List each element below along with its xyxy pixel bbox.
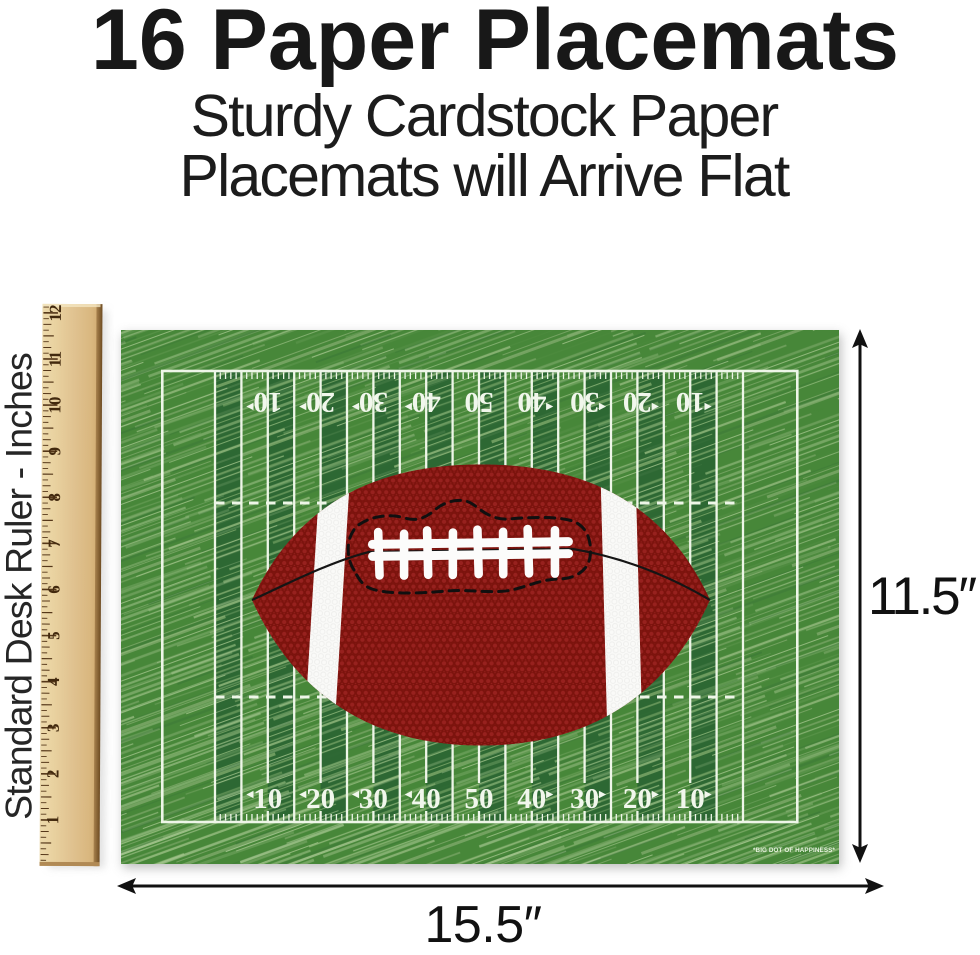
svg-text:*BIG DOT OF HAPPINESS*: *BIG DOT OF HAPPINESS* bbox=[753, 847, 835, 854]
svg-text:40: 40 bbox=[412, 386, 441, 418]
svg-text:9: 9 bbox=[45, 447, 64, 456]
svg-text:3: 3 bbox=[44, 724, 63, 733]
svg-text:11: 11 bbox=[46, 351, 65, 367]
svg-text:10: 10 bbox=[253, 386, 282, 418]
svg-text:40: 40 bbox=[412, 783, 441, 815]
svg-text:4: 4 bbox=[44, 677, 63, 686]
svg-text:7: 7 bbox=[45, 539, 64, 548]
svg-text:8: 8 bbox=[45, 493, 64, 502]
svg-text:6: 6 bbox=[44, 585, 63, 594]
svg-text:30: 30 bbox=[359, 783, 388, 815]
svg-text:40: 40 bbox=[517, 386, 546, 418]
svg-text:50: 50 bbox=[465, 783, 494, 815]
svg-text:20: 20 bbox=[306, 783, 335, 815]
svg-text:20: 20 bbox=[306, 386, 335, 418]
svg-text:30: 30 bbox=[570, 783, 599, 815]
svg-text:10: 10 bbox=[676, 783, 705, 815]
svg-text:20: 20 bbox=[623, 386, 652, 418]
svg-text:40: 40 bbox=[517, 783, 546, 815]
svg-text:30: 30 bbox=[570, 386, 599, 418]
svg-text:20: 20 bbox=[623, 783, 652, 815]
svg-text:2: 2 bbox=[44, 770, 63, 779]
svg-text:50: 50 bbox=[465, 386, 494, 418]
svg-text:10: 10 bbox=[676, 386, 705, 418]
svg-text:10: 10 bbox=[253, 783, 282, 815]
svg-text:30: 30 bbox=[359, 386, 388, 418]
svg-text:10: 10 bbox=[45, 397, 64, 414]
svg-text:5: 5 bbox=[44, 631, 63, 640]
svg-text:12: 12 bbox=[46, 304, 65, 321]
svg-text:1: 1 bbox=[43, 816, 62, 825]
